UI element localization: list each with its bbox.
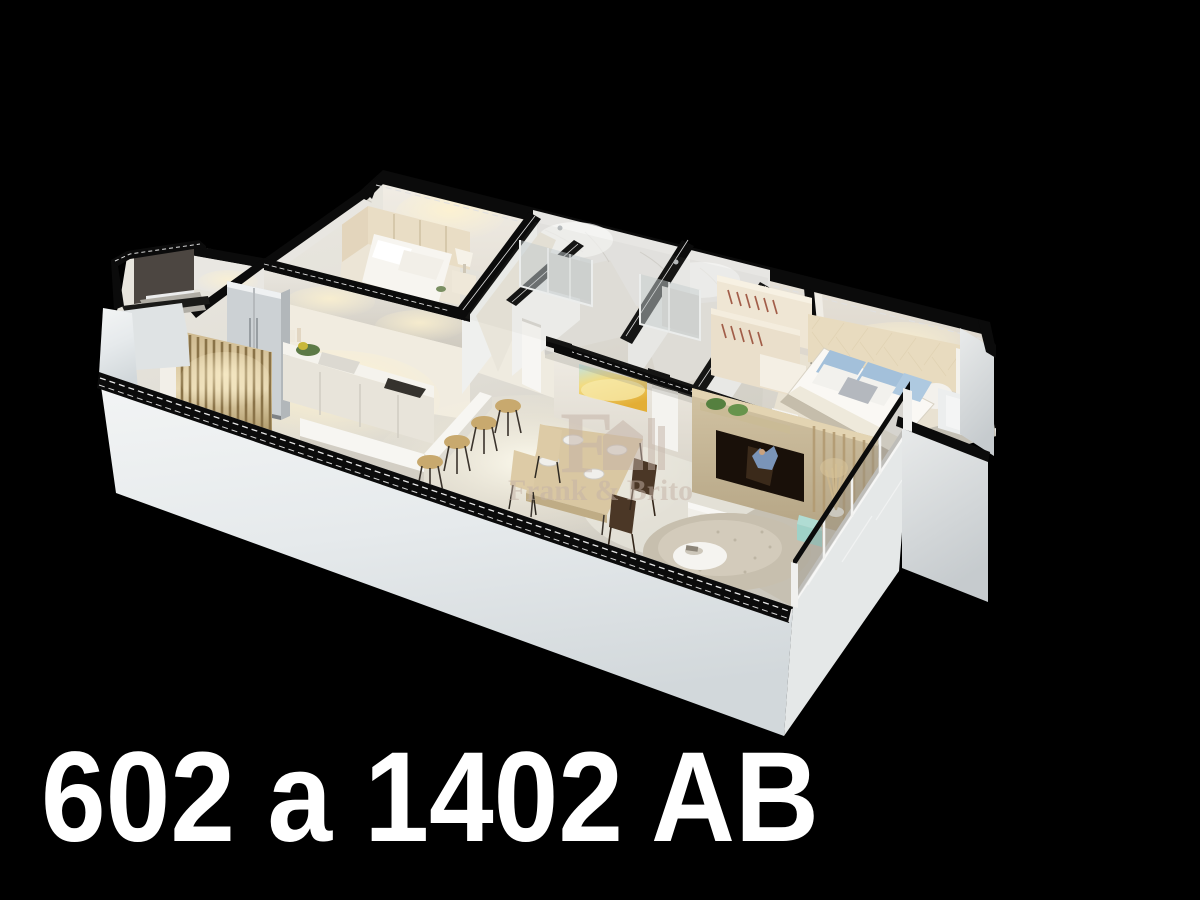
svg-text:Frank & Brito: Frank & Brito [508, 474, 693, 507]
svg-text:602 a 1402 AB: 602 a 1402 AB [41, 726, 819, 869]
